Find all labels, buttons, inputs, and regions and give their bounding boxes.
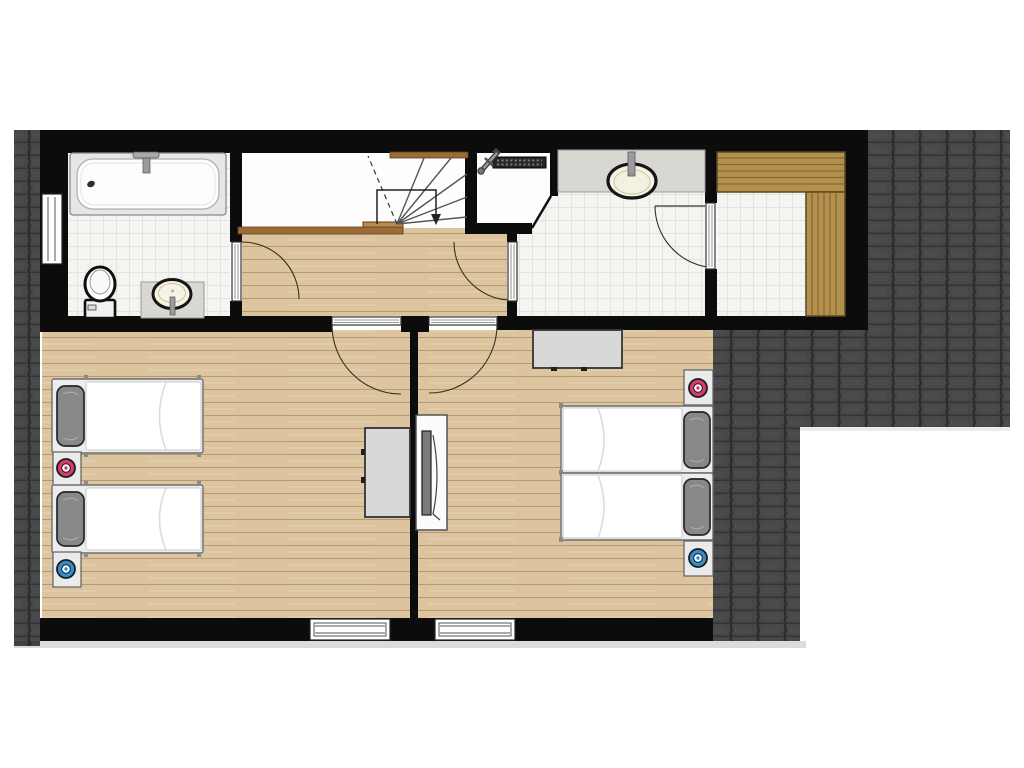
bed-left-1	[52, 375, 203, 457]
desk-right	[533, 330, 622, 371]
wall-stair-shower	[465, 150, 477, 234]
bathtub	[70, 152, 226, 215]
bedroom-left-floor	[42, 330, 410, 618]
nightstand-left-top	[53, 452, 81, 486]
nightstand-right-top	[684, 370, 713, 405]
wall-hall-shower-upper	[507, 228, 517, 242]
hallway-floor	[242, 228, 507, 316]
sauna-bench-right	[806, 192, 845, 316]
roof-edge-shadow	[800, 427, 1010, 431]
blue-lamp	[57, 560, 75, 578]
plan-bottom-shadow	[14, 641, 806, 648]
red-lamp	[57, 459, 75, 477]
roof-tiles-left-strip	[14, 130, 40, 646]
bathroom-basin-faucet	[170, 297, 175, 315]
wall-shower-stall-bottom	[465, 223, 532, 234]
sauna-bench-top	[717, 152, 845, 192]
stair-threshold	[238, 227, 403, 234]
blue-lamp	[689, 549, 707, 567]
nightstand-left-bottom	[53, 552, 81, 587]
shower-room-washbasin	[558, 150, 705, 198]
red-lamp	[689, 379, 707, 397]
wall-top	[40, 130, 868, 153]
bathroom-window	[42, 194, 62, 264]
wall-shower-sauna-upper	[705, 150, 717, 203]
toilet-flush-button	[88, 305, 96, 310]
wall-mid-band-right	[497, 316, 868, 330]
wall-sauna-right	[845, 130, 868, 330]
wall-shower-stall-right	[550, 150, 558, 196]
bed-right-2	[559, 473, 713, 542]
bedroom-right-window	[435, 619, 515, 640]
bedroom-left-window	[310, 619, 390, 640]
floor-plan	[0, 0, 1024, 768]
nightstand-right-bottom	[684, 541, 713, 576]
stair-landing-floor	[242, 150, 465, 228]
shower-drain-channel	[493, 157, 546, 168]
wall-hall-shower-lower	[507, 301, 517, 316]
tv-board	[416, 415, 447, 530]
bed-right-1	[559, 403, 713, 475]
bathroom-washbasin	[141, 280, 204, 319]
floor-plan-canvas	[0, 0, 1024, 768]
desk-left	[361, 428, 410, 517]
wall-shower-sauna-lower	[705, 269, 717, 316]
tv-screen	[422, 431, 431, 515]
bed-left-2	[52, 481, 203, 557]
toilet	[85, 267, 115, 318]
stair-top-band	[390, 152, 468, 158]
